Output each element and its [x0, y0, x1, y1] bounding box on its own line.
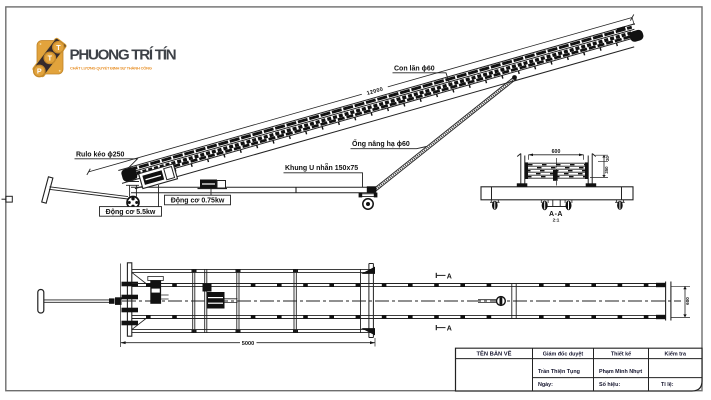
svg-text:5000: 5000: [242, 341, 254, 347]
svg-text:P: P: [37, 67, 42, 76]
svg-text:Tỉ lệ:: Tỉ lệ:: [661, 382, 674, 388]
svg-text:Động cơ 0.75kw: Động cơ 0.75kw: [171, 198, 225, 205]
svg-text:PHUONG TRÍ TÍN: PHUONG TRÍ TÍN: [70, 47, 178, 64]
svg-text:Ngày:: Ngày:: [538, 382, 553, 388]
svg-text:350: 350: [604, 166, 609, 174]
svg-text:Trần Thiện Tụng: Trần Thiện Tụng: [538, 369, 580, 375]
svg-text:Phạm Minh Nhựt: Phạm Minh Nhựt: [599, 369, 642, 375]
svg-text:Kiểm tra: Kiểm tra: [664, 350, 687, 357]
svg-text:T: T: [56, 43, 61, 52]
svg-text:Rulo kéo ϕ250: Rulo kéo ϕ250: [76, 152, 125, 159]
svg-text:600: 600: [685, 297, 690, 305]
svg-text:Giám đốc duyệt: Giám đốc duyệt: [543, 350, 584, 357]
svg-text:Thiết kế: Thiết kế: [611, 350, 631, 357]
svg-text:Động cơ 5.5kw: Động cơ 5.5kw: [106, 209, 156, 216]
svg-text:CHẤT LƯỢNG QUYẾT ĐỊNH SỰ THÀNH: CHẤT LƯỢNG QUYẾT ĐỊNH SỰ THÀNH CÔNG: [70, 65, 152, 70]
svg-text:A: A: [447, 273, 452, 280]
svg-text:Số hiệu:: Số hiệu:: [599, 381, 620, 388]
svg-text:Ống nâng hạ ϕ60: Ống nâng hạ ϕ60: [352, 138, 410, 148]
svg-text:2:1: 2:1: [553, 218, 560, 223]
svg-text:A: A: [447, 326, 452, 333]
svg-text:600: 600: [552, 149, 561, 155]
svg-text:Khung U nhẵn 150x75: Khung U nhẵn 150x75: [285, 163, 358, 172]
svg-text:TÊN BẢN VẼ: TÊN BẢN VẼ: [476, 349, 511, 357]
svg-text:20: 20: [605, 156, 610, 161]
svg-text:Con lăn ϕ60: Con lăn ϕ60: [394, 66, 435, 73]
svg-text:T: T: [48, 54, 53, 63]
